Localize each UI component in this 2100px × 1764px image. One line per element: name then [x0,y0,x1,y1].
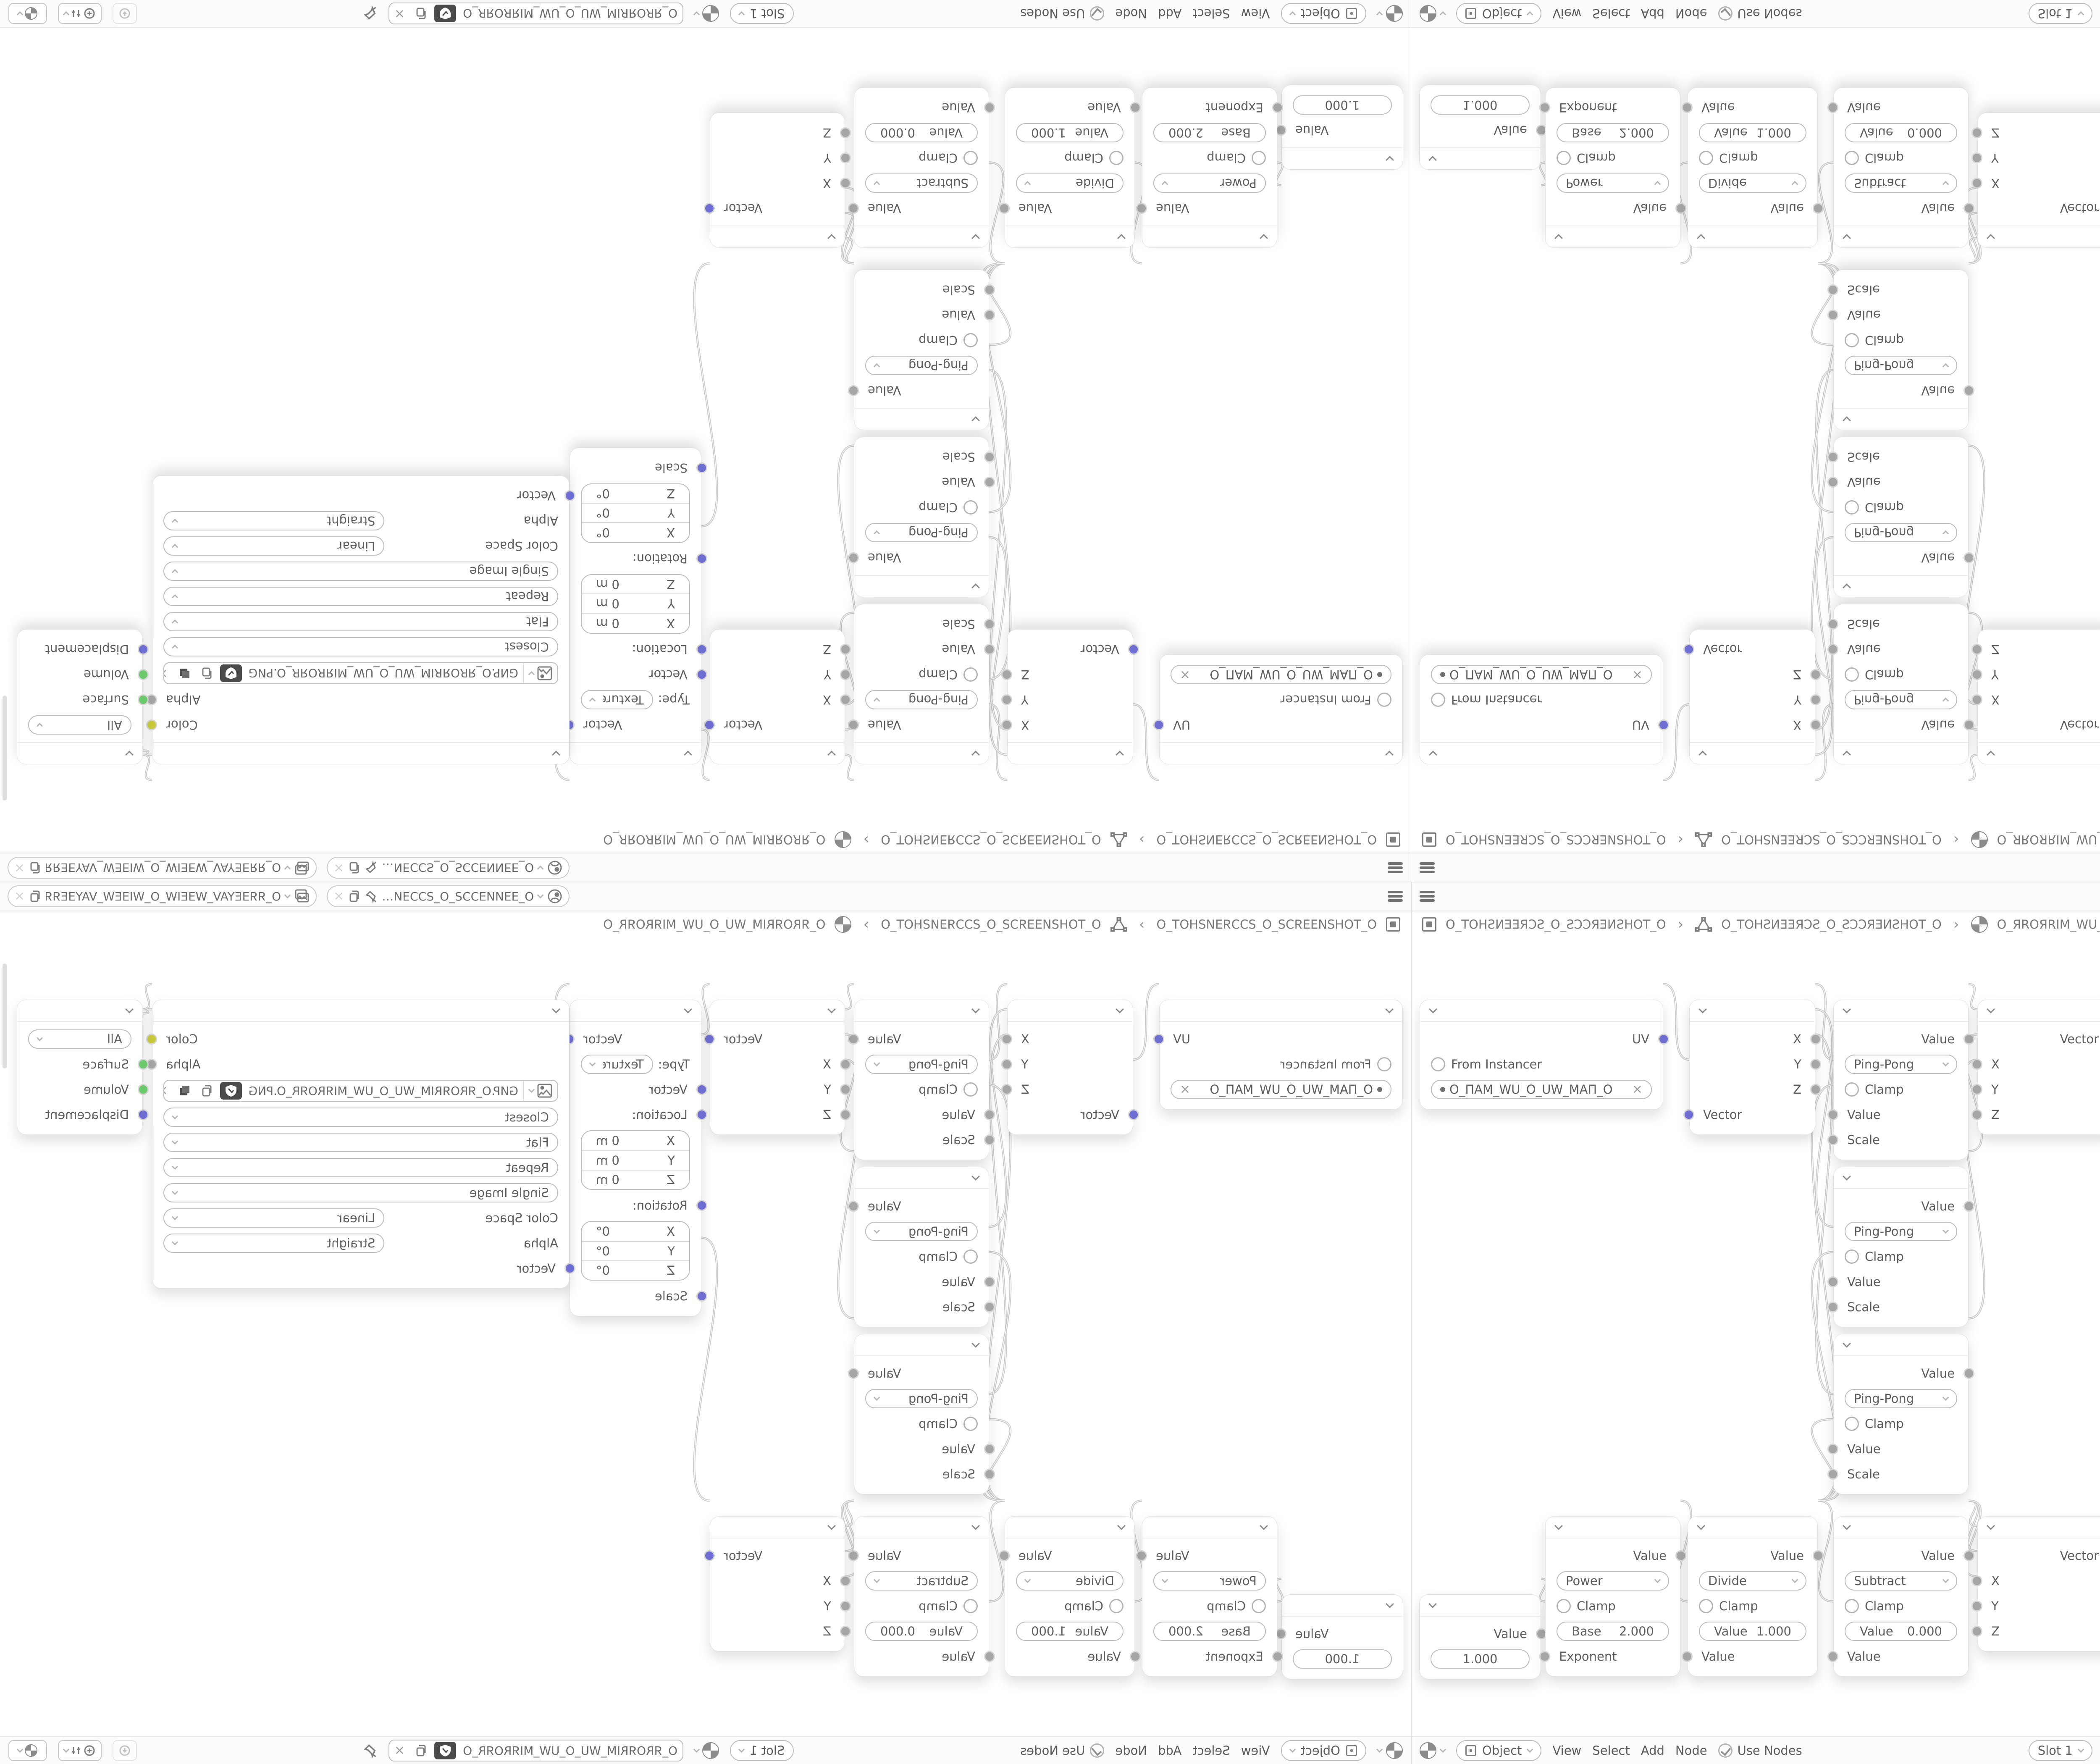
output-target-dropdown[interactable]: All [28,1029,131,1049]
material-browse-button[interactable] [694,5,719,22]
menu-node[interactable]: Node [1675,1743,1707,1758]
combine-xyz-node[interactable]: Vector X Y Z [710,1516,845,1651]
vector-output-socket[interactable] [704,203,715,214]
value-field[interactable]: Value1.000 [1699,1622,1806,1641]
collapse-chevron-icon[interactable] [1698,1005,1707,1013]
exponent-input-socket[interactable] [1272,1651,1283,1662]
value-input-socket[interactable] [984,1109,995,1120]
node-header[interactable] [1420,1000,1663,1022]
separate-xyz-node[interactable]: X Y Z Vector [1007,1000,1133,1135]
math-ping-pong-node[interactable]: Value Ping-Pong Clamp Value Scale [854,604,989,764]
x-input-socket[interactable] [1971,1575,1982,1586]
value-input-socket[interactable] [984,644,995,655]
node-header[interactable] [1978,1517,2100,1538]
combine-xyz-node[interactable]: Vector X Y Z [710,629,845,764]
menu-hamburger-icon[interactable] [1419,861,1436,875]
material-datablock-field[interactable]: O_ЯROЯRIM_WU_O_UW_MIЯROЯR_O × [388,1740,683,1761]
node-header[interactable] [1834,575,1968,597]
use-nodes-toggle[interactable]: Use Nodes [1718,6,1802,21]
menu-node[interactable]: Node [1115,1743,1147,1758]
color-output-socket[interactable] [146,1034,157,1045]
editor-type-button[interactable] [1377,1742,1403,1759]
y-input-socket[interactable] [840,669,851,680]
value-input-socket[interactable] [1130,1651,1141,1662]
view-layer-selector[interactable]: O_ЯЯƎEYAV_WƎEIW_O_WIƎEW_VAYƎEЯЯ_O × [8,857,317,879]
clamp-checkbox[interactable] [963,500,978,514]
fake-user-shield-button[interactable] [220,664,242,682]
menu-view[interactable]: View [1241,6,1270,21]
menu-node[interactable]: Node [1115,6,1147,21]
menu-select[interactable]: Select [1192,1743,1230,1758]
scene-selector[interactable]: O_ƎƎИИƎƆƆƧ_O_ƧƆƆƎИ… × [327,885,570,907]
x-output-socket[interactable] [1810,1034,1821,1045]
collapse-chevron-icon[interactable] [1843,751,1851,759]
collapse-chevron-icon[interactable] [1843,1339,1851,1348]
overlays-button[interactable] [8,1740,47,1761]
combine-xyz-node[interactable]: Vector X Y Z [1977,629,2100,764]
axis-value[interactable]: 0° [596,1263,610,1278]
separate-xyz-node[interactable]: X Y Z Vector [1689,629,1815,764]
value-input-socket[interactable] [984,1444,995,1454]
use-nodes-checkbox[interactable] [1718,6,1732,21]
collapse-chevron-icon[interactable] [827,234,836,242]
y-input-socket[interactable] [1971,669,1982,680]
from-instancer-checkbox[interactable] [1431,1057,1445,1071]
operation-dropdown[interactable]: Power [1557,173,1669,193]
node-header[interactable] [710,742,845,764]
use-nodes-checkbox[interactable] [1090,6,1104,21]
value-field[interactable]: Value0.000 [1845,123,1957,142]
math-divide-node[interactable]: Value Divide Clamp Value1.000 Value [1005,87,1135,248]
collapse-chevron-icon[interactable] [1554,234,1563,242]
operation-dropdown[interactable]: Power [1557,1571,1669,1591]
z-output-socket[interactable] [1810,669,1821,680]
node-header[interactable] [1688,226,1817,247]
displacement-input-socket[interactable] [138,644,149,655]
value-field[interactable]: Value1.000 [1016,1622,1123,1641]
clamp-checkbox[interactable] [1109,1599,1123,1613]
use-nodes-toggle[interactable]: Use Nodes [1020,1743,1104,1758]
value-input-socket[interactable] [984,102,995,113]
use-nodes-toggle[interactable]: Use Nodes [1020,6,1104,21]
node-header[interactable] [1834,1167,1968,1189]
value-output-socket[interactable] [1136,203,1147,214]
breadcrumb-scene[interactable]: O_TOHƧИƎƎЯƆƧ_O_ƧƆƆЯƎИƧHOT_O [1156,832,1377,847]
clamp-checkbox[interactable] [1109,151,1123,165]
location-input-socket[interactable] [696,644,707,655]
value-output-socket[interactable] [999,203,1010,214]
material-output-node[interactable]: All Surface Volume Displacement [17,1000,143,1135]
scale-input-socket[interactable] [984,451,995,462]
node-header[interactable] [152,742,569,764]
node-header[interactable] [1160,742,1402,764]
editor-type-button[interactable] [1377,5,1403,22]
rotation-values[interactable]: X0° Y0° Z0° [581,483,690,543]
breadcrumb-object[interactable]: O_TOHƧИƎƎЯƆƧ_O_ƧƆƆЯƎИƧHOT_O [1721,917,1942,932]
combine-xyz-node[interactable]: Vector X Y Z [1977,113,2100,248]
node-header[interactable] [1978,742,2100,764]
x-input-socket[interactable] [840,694,851,705]
surface-input-socket[interactable] [138,1059,149,1070]
node-header[interactable] [1978,1000,2100,1022]
axis-value[interactable]: 0 m [596,1153,619,1168]
collapse-chevron-icon[interactable] [971,1339,980,1348]
alpha-mode-dropdown[interactable]: Straight [163,511,384,530]
scale-input-socket[interactable] [1827,451,1838,462]
clamp-checkbox[interactable] [1252,151,1266,165]
math-power-node[interactable]: Value Power Clamp Base2.000 Exponent [1142,1516,1277,1677]
unlink-material-button[interactable]: × [389,1740,410,1761]
collapse-chevron-icon[interactable] [1843,416,1851,425]
scale-input-socket[interactable] [1827,1469,1838,1480]
base-field[interactable]: Base2.000 [1153,1622,1266,1641]
value-output-socket[interactable] [848,1201,859,1212]
value-input-socket[interactable] [1827,310,1838,320]
exponent-input-socket[interactable] [1272,102,1283,113]
clamp-checkbox[interactable] [1845,1599,1859,1613]
unlink-image-button[interactable]: × [163,1081,173,1101]
value-input-socket[interactable] [1827,1109,1838,1120]
scale-input-socket[interactable] [984,1469,995,1480]
menu-hamburger-icon[interactable] [1387,889,1404,903]
breadcrumb-material[interactable]: O_ЯROЯRIM_WU_O_UW_MIЯROЯR_O [1997,917,2100,932]
volume-input-socket[interactable] [138,1084,149,1095]
node-canvas[interactable]: UV From Instancer O_ПAM_WU_O_UW_MAП_O× X… [1411,937,2100,1736]
node-header[interactable] [1834,226,1968,247]
value-input-socket[interactable] [1827,644,1838,655]
operation-dropdown[interactable]: Ping-Pong [865,1389,978,1408]
clamp-checkbox[interactable] [963,667,978,682]
axis-value[interactable]: 0° [596,506,610,520]
source-dropdown[interactable]: Single Image [163,562,558,581]
vector-input-socket[interactable] [696,669,707,680]
uv-map-field[interactable]: O_ПAM_WU_O_UW_MAП_O× [1431,1080,1652,1099]
color-space-dropdown[interactable]: Linear [163,1208,384,1228]
vector-input-socket[interactable] [564,1263,575,1274]
math-ping-pong-node[interactable]: Value Ping-Pong Clamp Value Scale [854,1167,989,1327]
x-output-socket[interactable] [1001,719,1012,730]
breadcrumb-material[interactable]: O_ЯROЯRIM_WU_O_UW_MIЯROЯR_O [603,917,825,932]
vector-input-socket[interactable] [1128,644,1139,655]
value-input-socket[interactable] [1827,477,1838,488]
x-output-socket[interactable] [1001,1034,1012,1045]
interpolation-dropdown[interactable]: Closest [163,637,558,656]
z-input-socket[interactable] [840,127,851,138]
value-input-socket[interactable] [984,477,995,488]
node-header[interactable] [1282,1595,1403,1617]
value-output-socket[interactable] [1963,1034,1974,1045]
value-output-socket[interactable] [1963,1550,1974,1561]
x-input-socket[interactable] [1971,694,1982,705]
y-input-socket[interactable] [840,152,851,163]
node-header[interactable] [710,1517,845,1538]
node-header[interactable] [854,575,989,597]
rotation-input-socket[interactable] [696,1200,707,1211]
interpolation-dropdown[interactable]: Closest [163,1108,558,1127]
node-header[interactable] [854,1000,989,1022]
node-header[interactable] [1005,1517,1134,1538]
y-input-socket[interactable] [1971,152,1982,163]
operation-dropdown[interactable]: Power [1153,173,1266,193]
value-field[interactable]: 1.000 [1431,1649,1530,1669]
collapse-chevron-icon[interactable] [1698,751,1707,759]
clamp-checkbox[interactable] [963,1599,978,1613]
copy-icon[interactable] [29,890,42,903]
collapse-chevron-icon[interactable] [1385,1005,1394,1013]
scale-input-socket[interactable] [984,619,995,630]
exponent-input-socket[interactable] [1539,102,1550,113]
collapse-chevron-icon[interactable] [971,1005,980,1013]
menu-view[interactable]: View [1241,1743,1270,1758]
math-ping-pong-node[interactable]: Value Ping-Pong Clamp Value Scale [854,437,989,597]
node-header[interactable] [854,742,989,764]
unlink-material-button[interactable]: × [389,3,410,24]
mapping-node[interactable]: Vector Type:Texture Vector Location: X0 … [570,448,701,764]
menu-add[interactable]: Add [1158,1743,1181,1758]
copy-icon[interactable] [348,890,361,903]
collapse-chevron-icon[interactable] [971,1522,980,1530]
uv-map-field[interactable]: O_ПAM_WU_O_UW_MAП_O× [1171,665,1391,684]
x-input-socket[interactable] [840,1575,851,1586]
image-datablock-field[interactable]: GИP.O_ЯROЯRIM_WU_O_UW_MIЯROЯR_O.PNG × [163,662,558,684]
value-input-socket[interactable] [984,1276,995,1287]
menu-select[interactable]: Select [1592,1743,1630,1758]
collapse-chevron-icon[interactable] [684,751,692,759]
math-ping-pong-node[interactable]: Value Ping-Pong Clamp Value Scale [1833,1167,1969,1327]
combine-xyz-node[interactable]: Vector X Y Z [1977,1000,2100,1135]
from-instancer-checkbox[interactable] [1377,1057,1391,1071]
value-input-socket[interactable] [984,1651,995,1662]
pin-icon[interactable] [363,1743,378,1758]
editor-type-button[interactable] [1420,5,1445,22]
uv-map-field[interactable]: O_ПAM_WU_O_UW_MAП_O× [1171,1080,1391,1099]
uv-output-socket[interactable] [1153,719,1164,730]
scene-selector[interactable]: O_ƎƎИИƎƆƆƧ_O_ƧƆƆƎИ… × [327,857,570,879]
unlink-scene-button[interactable]: × [333,861,344,874]
y-output-socket[interactable] [1810,694,1821,705]
node-canvas[interactable]: UV From Instancer O_ПAM_WU_O_UW_MAП_O× X… [0,28,1411,827]
scale-input-socket[interactable] [1827,1302,1838,1312]
scale-input-socket[interactable] [1827,284,1838,295]
collapse-chevron-icon[interactable] [1843,1005,1851,1013]
operation-dropdown[interactable]: Subtract [1845,173,1957,193]
collapse-chevron-icon[interactable] [1116,1005,1124,1013]
z-input-socket[interactable] [1971,644,1982,655]
use-nodes-checkbox[interactable] [1718,1743,1732,1758]
operation-dropdown[interactable]: Ping-Pong [1845,356,1957,375]
node-header[interactable] [1688,1517,1817,1538]
combine-xyz-node[interactable]: Vector X Y Z [710,113,845,248]
math-ping-pong-node[interactable]: Value Ping-Pong Clamp Value Scale [1833,604,1969,764]
z-input-socket[interactable] [840,1109,851,1120]
math-subtract-node[interactable]: Value Subtract Clamp Value0.000 Value [1833,87,1969,248]
y-output-socket[interactable] [1810,1059,1821,1070]
collapse-chevron-icon[interactable] [827,1005,836,1013]
math-ping-pong-node[interactable]: Value Ping-Pong Clamp Value Scale [1833,270,1969,430]
value-input-socket[interactable] [1827,1276,1838,1287]
uv-output-socket[interactable] [1153,1034,1164,1045]
math-divide-node[interactable]: Value Divide Clamp Value1.000 Value [1005,1516,1135,1677]
breadcrumb-scene[interactable]: O_TOHƧИƎƎЯƆƧ_O_ƧƆƆЯƎИƧHOT_O [1446,917,1666,932]
node-header[interactable] [570,1000,701,1022]
x-input-socket[interactable] [1971,1059,1982,1070]
material-output-node[interactable]: All Surface Volume Displacement [17,629,143,764]
pin-icon[interactable] [365,861,378,874]
image-texture-node[interactable]: Color Alpha GИP.O_ЯROЯRIM_WU_O_UW_MIЯROЯ… [152,475,570,764]
scale-input-socket[interactable] [1827,1134,1838,1145]
editor-type-button[interactable] [1420,1742,1445,1759]
node-header[interactable] [854,1167,989,1189]
node-header[interactable] [1834,1334,1968,1356]
surface-input-socket[interactable] [138,694,149,705]
menu-select[interactable]: Select [1192,6,1230,21]
collapse-chevron-icon[interactable] [1987,751,1995,759]
node-header[interactable] [1834,408,1968,430]
collapse-chevron-icon[interactable] [1843,1522,1851,1530]
collapse-chevron-icon[interactable] [971,234,980,242]
clamp-checkbox[interactable] [1845,500,1859,514]
projection-dropdown[interactable]: Flat [163,612,558,631]
image-datablock-field[interactable]: GИP.O_ЯROЯRIM_WU_O_UW_MIЯROЯR_O.PNG × [163,1080,558,1102]
math-divide-node[interactable]: Value Divide Clamp Value1.000 Value [1688,87,1818,248]
node-header[interactable] [854,1334,989,1356]
value-input-socket[interactable] [1827,1444,1838,1454]
vector-input-socket[interactable] [1683,644,1694,655]
node-header[interactable] [1420,147,1541,169]
value-input-socket[interactable] [984,310,995,320]
uv-map-node[interactable]: UV From Instancer O_ПAM_WU_O_UW_MAП_O× [1159,1000,1403,1110]
y-input-socket[interactable] [840,1084,851,1095]
node-header[interactable] [854,408,989,430]
material-slot-dropdown[interactable]: Slot 1 [2029,1740,2092,1761]
y-output-socket[interactable] [1001,694,1012,705]
node-header[interactable] [152,1000,569,1022]
collapse-chevron-icon[interactable] [125,751,134,759]
clamp-checkbox[interactable] [1699,1599,1713,1613]
math-ping-pong-node[interactable]: Value Ping-Pong Clamp Value Scale [1833,1334,1969,1494]
clear-uv-button[interactable]: × [1632,668,1643,681]
collapse-chevron-icon[interactable] [1987,234,1995,242]
vector-input-socket[interactable] [1683,1109,1694,1120]
breadcrumb-scene[interactable]: O_TOHƧИƎƎЯƆƧ_O_ƧƆƆЯƎИƧHOT_O [1446,832,1666,847]
shader-type-dropdown[interactable]: Object [1456,1740,1541,1761]
operation-dropdown[interactable]: Subtract [865,1571,978,1591]
node-header[interactable] [710,226,845,247]
node-header[interactable] [710,1000,845,1022]
copy-material-button[interactable] [410,3,433,24]
x-input-socket[interactable] [1971,178,1982,189]
value-field[interactable]: Value1.000 [1016,123,1123,142]
collapse-chevron-icon[interactable] [1385,751,1394,759]
clamp-checkbox[interactable] [963,151,978,165]
clamp-checkbox[interactable] [1845,333,1859,347]
collapse-chevron-icon[interactable] [1987,1522,1995,1530]
operation-dropdown[interactable]: Ping-Pong [1845,1055,1957,1074]
collapse-chevron-icon[interactable] [684,1005,692,1013]
operation-dropdown[interactable]: Ping-Pong [865,1222,978,1241]
value-output-socket[interactable] [1813,203,1824,214]
collapse-chevron-icon[interactable] [1117,234,1126,242]
scale-input-socket[interactable] [984,284,995,295]
value-field[interactable]: 1.000 [1431,95,1530,115]
value-output-socket[interactable] [848,203,859,214]
value-output-socket[interactable] [1675,203,1686,214]
value-output-socket[interactable] [848,1034,859,1045]
clamp-checkbox[interactable] [1845,1249,1859,1264]
node-header[interactable] [1142,226,1277,247]
combine-xyz-node[interactable]: Vector X Y Z [710,1000,845,1135]
copy-icon[interactable] [348,861,361,874]
material-browse-button[interactable] [694,1742,719,1759]
operation-dropdown[interactable]: Ping-Pong [865,356,978,375]
math-subtract-node[interactable]: Value Subtract Clamp Value0.000 Value [854,87,989,248]
use-nodes-toggle[interactable]: Use Nodes [1718,1743,1802,1758]
math-power-node[interactable]: Value Power Clamp Base2.000 Exponent [1545,87,1680,248]
collapse-chevron-icon[interactable] [971,1172,980,1181]
extension-dropdown[interactable]: Repeat [163,587,558,606]
uv-output-socket[interactable] [1658,1034,1669,1045]
base-field[interactable]: Base2.000 [1557,123,1669,142]
breadcrumb-object[interactable]: O_TOHƧИƎƎЯƆƧ_O_ƧƆƆЯƎИƧHOT_O [881,917,1101,932]
collapse-chevron-icon[interactable] [1386,156,1394,164]
unlink-view-layer-button[interactable]: × [14,890,25,903]
operation-dropdown[interactable]: Ping-Pong [865,523,978,542]
mapping-type-dropdown[interactable]: Texture [581,690,653,709]
menu-view[interactable]: View [1552,1743,1581,1758]
proportional-edit-button[interactable] [58,3,102,24]
axis-value[interactable]: 0° [596,1224,610,1239]
clamp-checkbox[interactable] [1557,1599,1571,1613]
collapse-chevron-icon[interactable] [1843,234,1851,242]
node-header[interactable] [17,742,142,764]
axis-value[interactable]: 0° [596,1244,610,1258]
overlays-button[interactable] [8,3,47,24]
clamp-checkbox[interactable] [1845,151,1859,165]
y-input-socket[interactable] [1971,1084,1982,1095]
operation-dropdown[interactable]: Ping-Pong [1845,523,1957,542]
node-header[interactable] [1008,1000,1133,1022]
projection-dropdown[interactable]: Flat [163,1133,558,1152]
math-ping-pong-node[interactable]: Value Ping-Pong Clamp Value Scale [854,270,989,430]
collapse-chevron-icon[interactable] [1429,1005,1437,1013]
breadcrumb-material[interactable]: O_ЯROЯRIM_WU_O_UW_MIЯROЯR_O [1997,832,2100,847]
axis-value[interactable]: 0 m [596,577,619,591]
operation-dropdown[interactable]: Divide [1699,1571,1806,1591]
z-input-socket[interactable] [840,644,851,655]
collapse-chevron-icon[interactable] [1987,1005,1995,1013]
operation-dropdown[interactable]: Subtract [865,173,978,193]
math-divide-node[interactable]: Value Divide Clamp Value1.000 Value [1688,1516,1818,1677]
scale-input-socket[interactable] [1827,619,1838,630]
exponent-input-socket[interactable] [1539,1651,1550,1662]
copy-icon[interactable] [29,861,42,874]
extension-dropdown[interactable]: Repeat [163,1158,558,1177]
value-input-socket[interactable] [1682,1651,1693,1662]
operation-dropdown[interactable]: Ping-Pong [865,690,978,709]
menu-hamburger-icon[interactable] [1387,861,1404,875]
node-header[interactable] [17,1000,142,1022]
z-input-socket[interactable] [1971,1626,1982,1637]
value-input-socket[interactable] [1827,102,1838,113]
pin-icon[interactable] [365,890,378,903]
base-field[interactable]: Base2.000 [1153,123,1266,142]
menu-node[interactable]: Node [1675,6,1707,21]
value-output-socket[interactable] [848,1550,859,1561]
z-input-socket[interactable] [1971,127,1982,138]
clear-uv-button[interactable]: × [1632,1083,1643,1096]
value-output-socket[interactable] [1813,1550,1824,1561]
color-output-socket[interactable] [146,719,157,730]
